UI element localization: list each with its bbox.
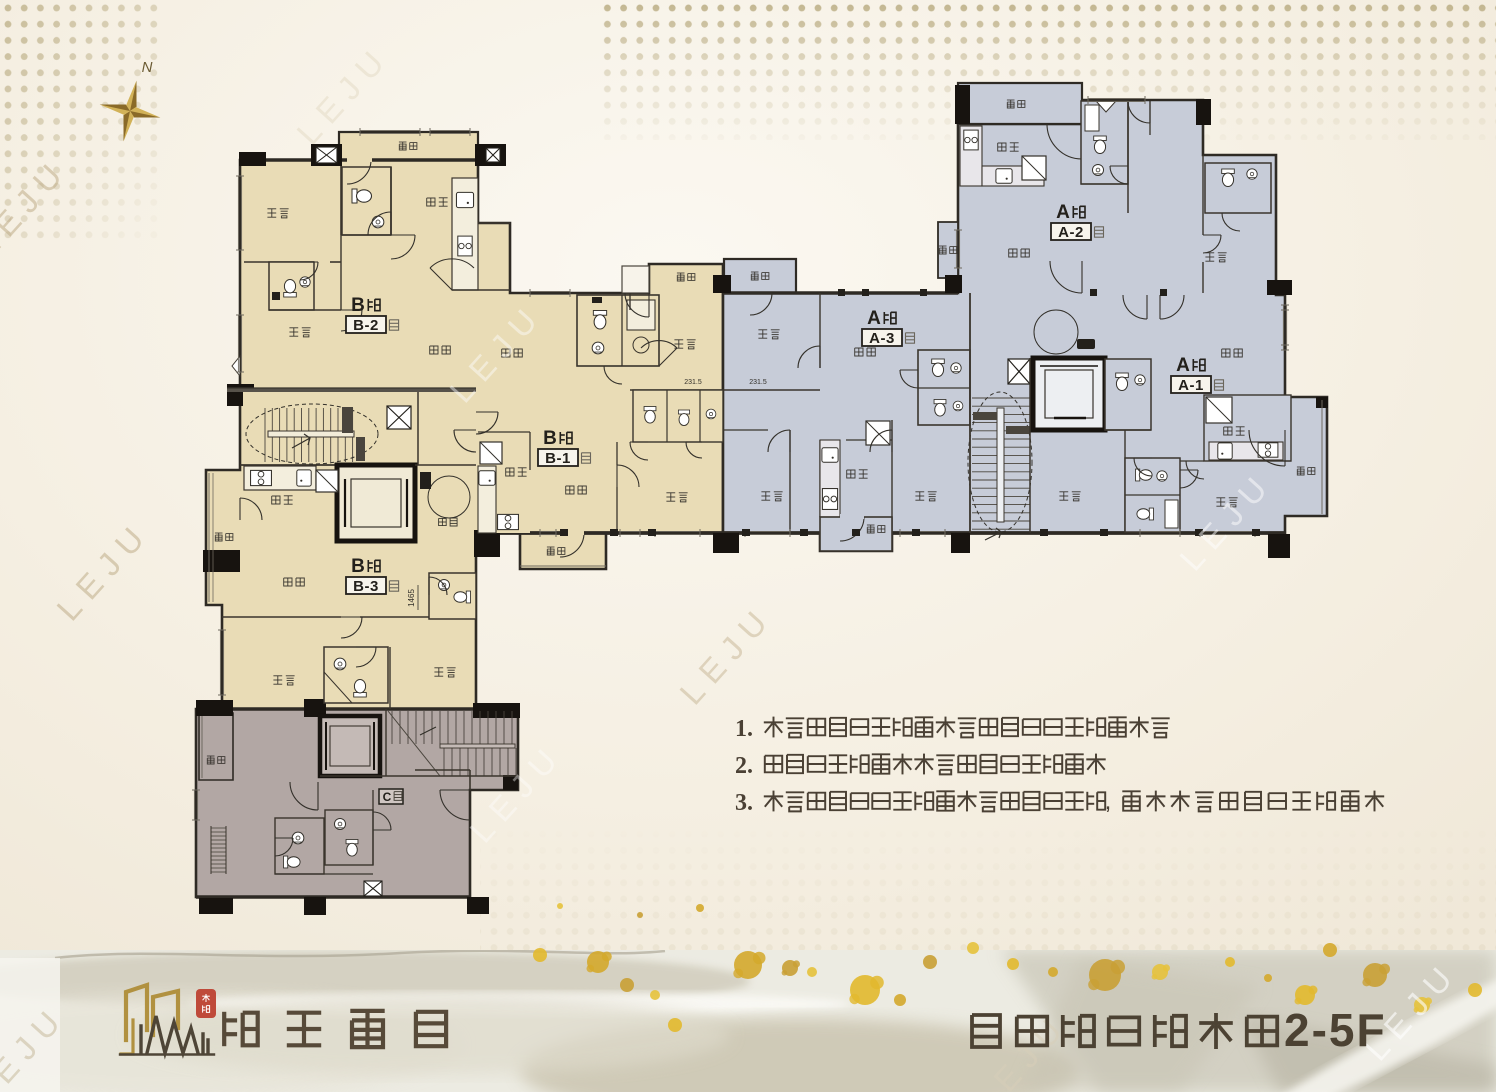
svg-text:B: B bbox=[351, 556, 365, 577]
svg-text:231.5: 231.5 bbox=[749, 379, 767, 386]
svg-text:,: , bbox=[1105, 788, 1112, 815]
svg-text:A: A bbox=[867, 308, 881, 329]
svg-text:B: B bbox=[351, 295, 365, 316]
svg-text:A: A bbox=[1176, 355, 1190, 376]
svg-text:1.: 1. bbox=[735, 716, 753, 742]
svg-text:N: N bbox=[142, 59, 153, 76]
svg-text:B-1: B-1 bbox=[545, 450, 571, 467]
svg-text:A: A bbox=[1056, 202, 1070, 223]
svg-text:B: B bbox=[543, 428, 557, 449]
svg-text:2.: 2. bbox=[735, 753, 753, 779]
svg-text:231.5: 231.5 bbox=[684, 379, 702, 386]
svg-text:B-2: B-2 bbox=[353, 317, 379, 334]
svg-text:2-5F: 2-5F bbox=[1284, 1004, 1387, 1056]
svg-text:3.: 3. bbox=[735, 790, 753, 816]
svg-text:B-3: B-3 bbox=[353, 578, 379, 595]
svg-text:1465: 1465 bbox=[407, 589, 416, 607]
svg-text:C: C bbox=[383, 790, 392, 804]
svg-text:A-2: A-2 bbox=[1058, 224, 1084, 241]
svg-text:A-1: A-1 bbox=[1178, 377, 1204, 394]
svg-text:A-3: A-3 bbox=[869, 330, 895, 347]
